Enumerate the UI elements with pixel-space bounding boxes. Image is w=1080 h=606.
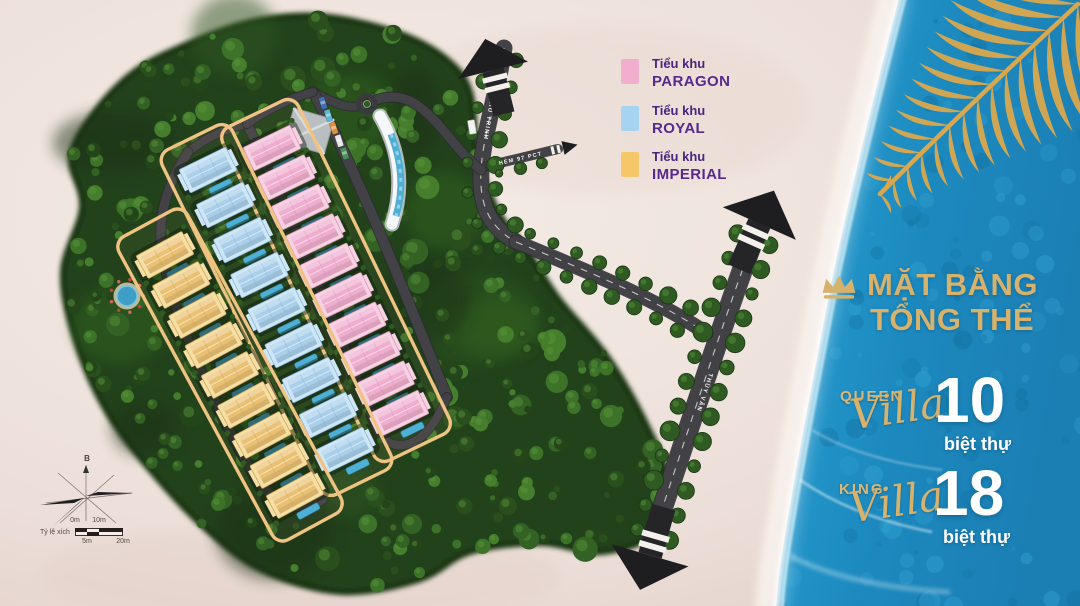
legend-swatch-royal [621,106,639,131]
legend: Tiểu khu PARAGON Tiểu khu ROYAL Tiểu khu… [621,56,730,185]
villa-script-word: Villa [848,382,948,437]
masterplan-poster: PHAN CHU TRINHHẺM 97 PCTTHÙY VÂNB Tiểu k… [0,0,1080,606]
villa-script-word: Villa [847,475,947,530]
title-line-2: TỔNG THỂ [867,303,1038,338]
legend-item-imperial: Tiểu khu IMPERIAL [621,149,730,185]
legend-label-imperial: Tiểu khu IMPERIAL [652,149,727,185]
scale-tick: 0m [70,517,80,524]
subzone-name: PARAGON [652,73,730,92]
masterplan-title-block: MẶT BẰNG TỔNG THỂ [820,268,1070,337]
title-line-1: MẶT BẰNG [867,268,1038,303]
scale-bar: Tỷ lệ xích 0m 10m 5m 20m [40,516,170,550]
scale-bar-segment [75,528,87,532]
legend-item-paragon: Tiểu khu PARAGON [621,56,730,92]
scale-label: Tỷ lệ xích [40,529,70,536]
subzone-name: ROYAL [652,120,705,139]
scale-tick: 5m [82,538,92,545]
villa-unit-label: biệt thự [944,434,1011,455]
villa-unit-label: biệt thự [943,527,1010,548]
compass-north-label: B [84,454,90,463]
queen-villa-count: 10 [934,368,1005,432]
legend-group-label: Tiểu khu [652,56,730,73]
round-pool [117,286,137,306]
legend-group-label: Tiểu khu [652,103,705,120]
scale-tick: 20m [116,538,130,545]
legend-swatch-paragon [621,59,639,84]
page-title: MẶT BẰNG TỔNG THỂ [867,268,1038,337]
scale-bar-segment [87,532,99,536]
crown-icon [820,273,858,301]
subzone-name: IMPERIAL [652,166,727,185]
scale-tick: 10m [92,517,106,524]
legend-group-label: Tiểu khu [652,149,727,166]
scale-bar-segment [99,528,123,532]
king-villa-count: 18 [933,461,1004,525]
legend-item-royal: Tiểu khu ROYAL [621,103,730,139]
queen-villa-stat: QUEEN Villa 10 biệt thự [836,372,1036,462]
legend-label-royal: Tiểu khu ROYAL [652,103,705,139]
king-villa-stat: KING Villa 18 biệt thự [835,465,1035,555]
legend-swatch-imperial [621,152,639,177]
legend-label-paragon: Tiểu khu PARAGON [652,56,730,92]
